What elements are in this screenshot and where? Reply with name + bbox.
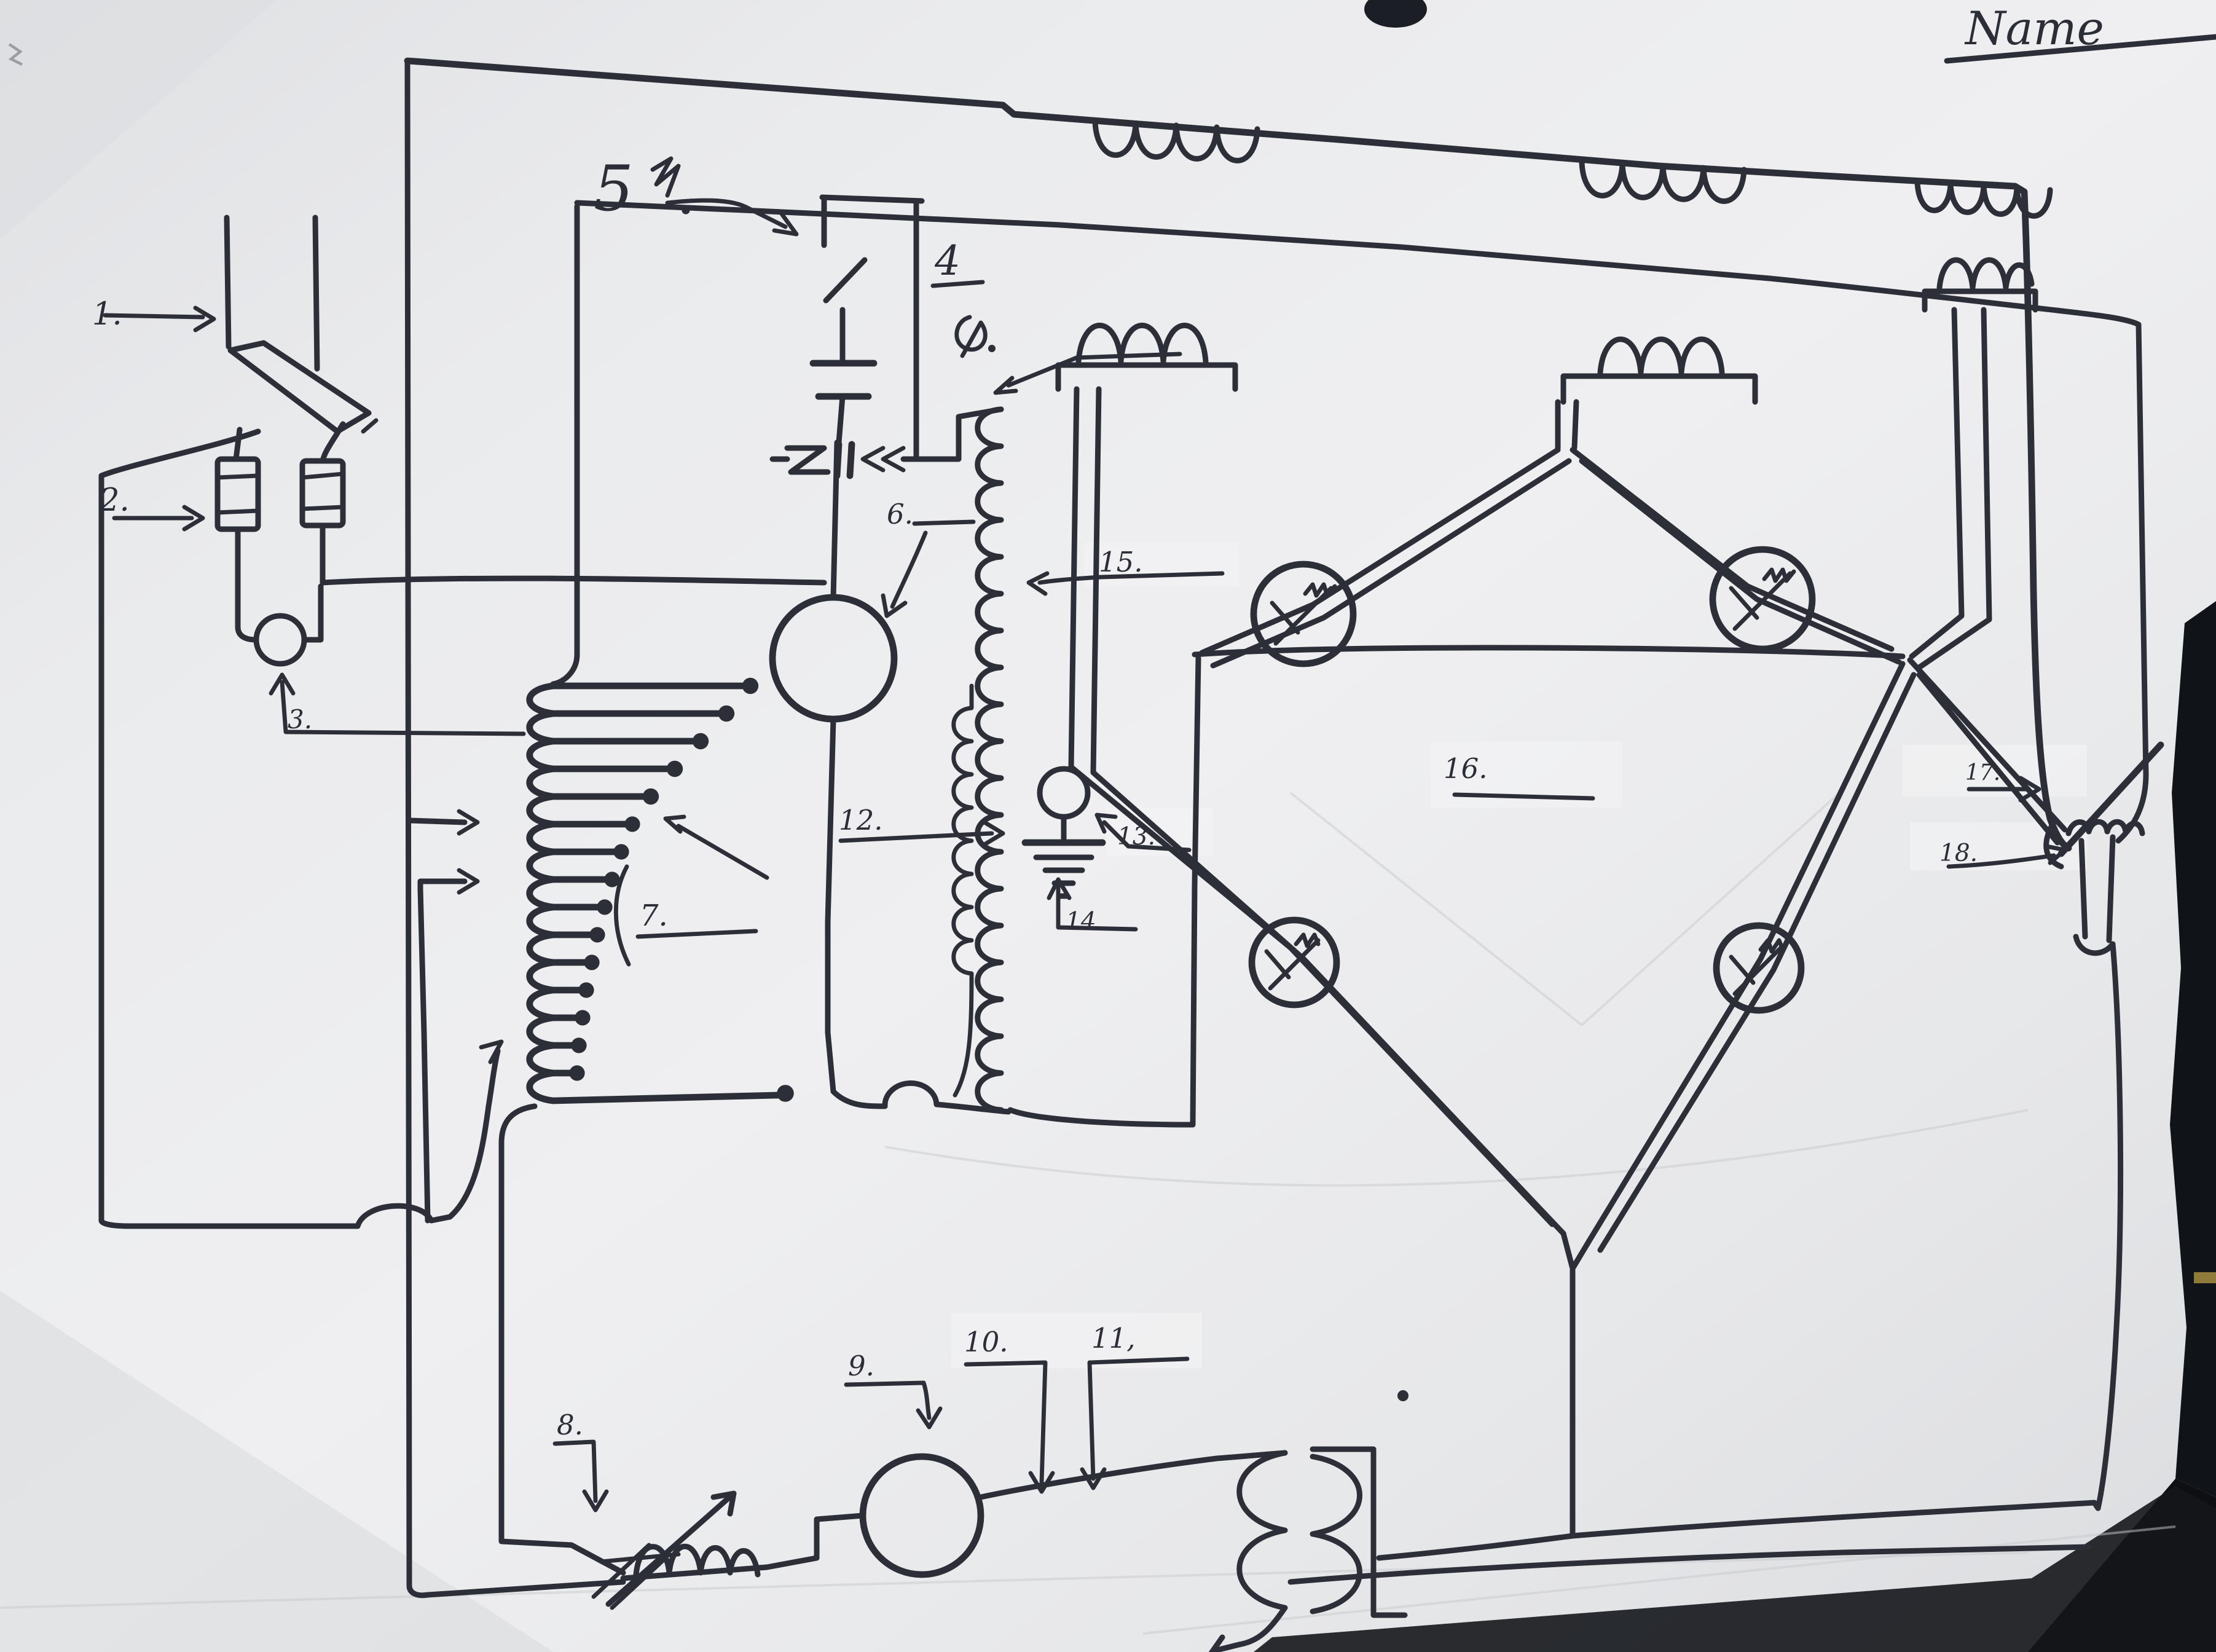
label-6-tail [914, 522, 973, 524]
label-15: 15. [1099, 546, 1143, 578]
yellow-glint [2194, 1272, 2216, 1283]
label-4: 4 [934, 237, 961, 285]
label-2: 2. [99, 482, 130, 519]
label-7: 7. [640, 899, 668, 933]
label-10: 10. [964, 1326, 1008, 1358]
schematic-canvas: Name [0, 0, 2216, 1652]
label-8: 8. [557, 1409, 583, 1441]
label-16: 16. [1444, 752, 1488, 785]
wire-arrow1-branch [409, 820, 465, 822]
points-top-bar [822, 197, 922, 201]
label-12: 12. [839, 804, 883, 836]
label-17: 17. [1965, 760, 2000, 785]
generator-stem [833, 442, 837, 597]
label-18: 18. [1939, 840, 1978, 867]
label-14: 14. [1066, 908, 1104, 935]
label-9: 9. [848, 1350, 874, 1382]
label-11: 11, [1091, 1322, 1136, 1355]
photo-of-schematic: Name [0, 0, 2216, 1652]
label-5: 5 [594, 152, 634, 226]
label-6: 6. [887, 498, 913, 530]
